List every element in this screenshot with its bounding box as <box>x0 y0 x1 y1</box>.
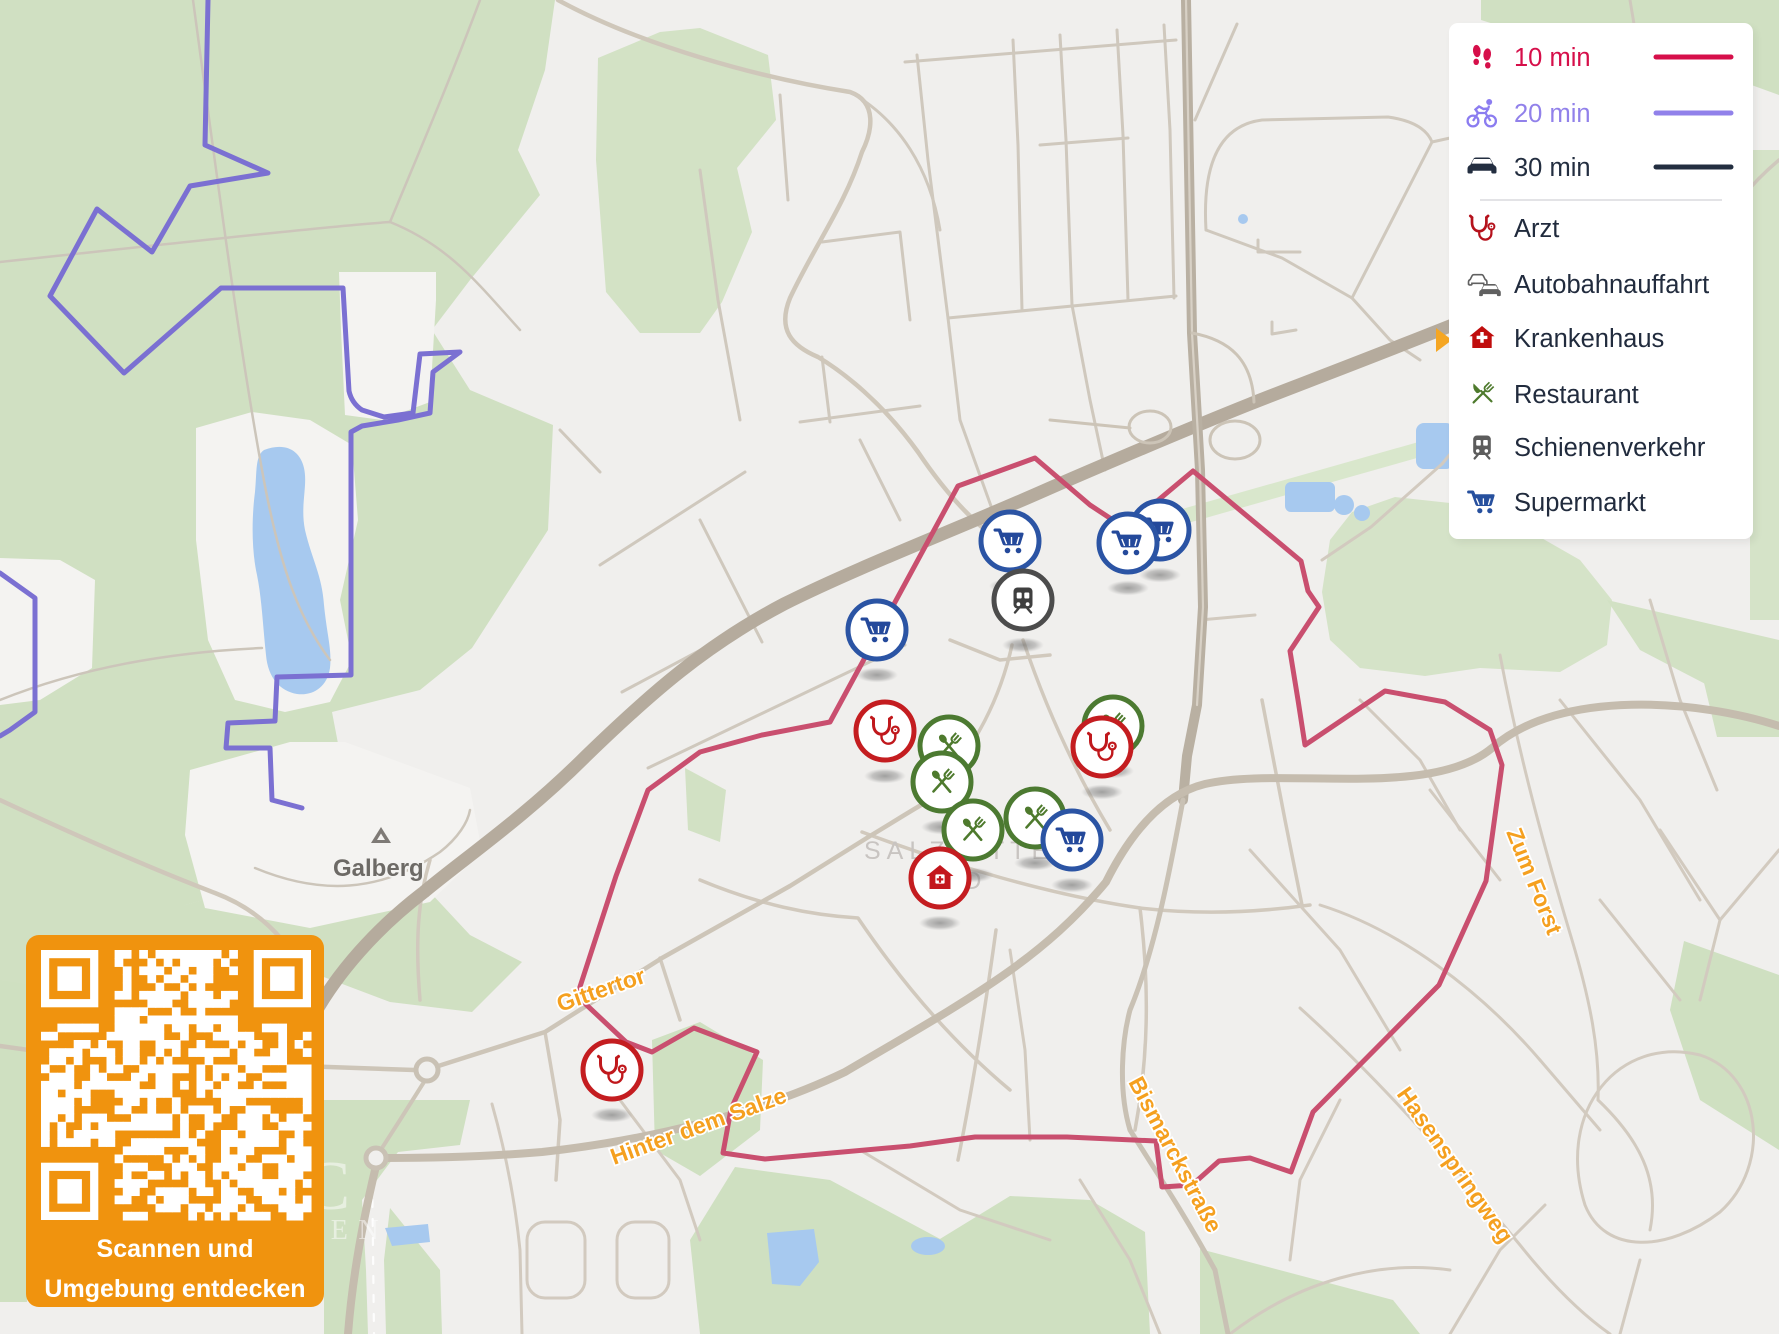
svg-text:Scannen und: Scannen und <box>97 1235 254 1263</box>
svg-text:20 min: 20 min <box>1514 100 1591 128</box>
svg-text:Umgebung entdecken: Umgebung entdecken <box>44 1275 305 1303</box>
svg-text:10 min: 10 min <box>1514 44 1591 72</box>
svg-text:Arzt: Arzt <box>1514 215 1559 243</box>
svg-text:Restaurant: Restaurant <box>1514 381 1639 409</box>
svg-text:Galberg: Galberg <box>333 855 424 882</box>
svg-text:Krankenhaus: Krankenhaus <box>1514 325 1664 353</box>
svg-text:30 min: 30 min <box>1514 154 1591 182</box>
svg-text:Schienenverkehr: Schienenverkehr <box>1514 434 1706 462</box>
svg-text:Supermarkt: Supermarkt <box>1514 489 1646 517</box>
svg-text:Autobahnauffahrt: Autobahnauffahrt <box>1514 271 1709 299</box>
